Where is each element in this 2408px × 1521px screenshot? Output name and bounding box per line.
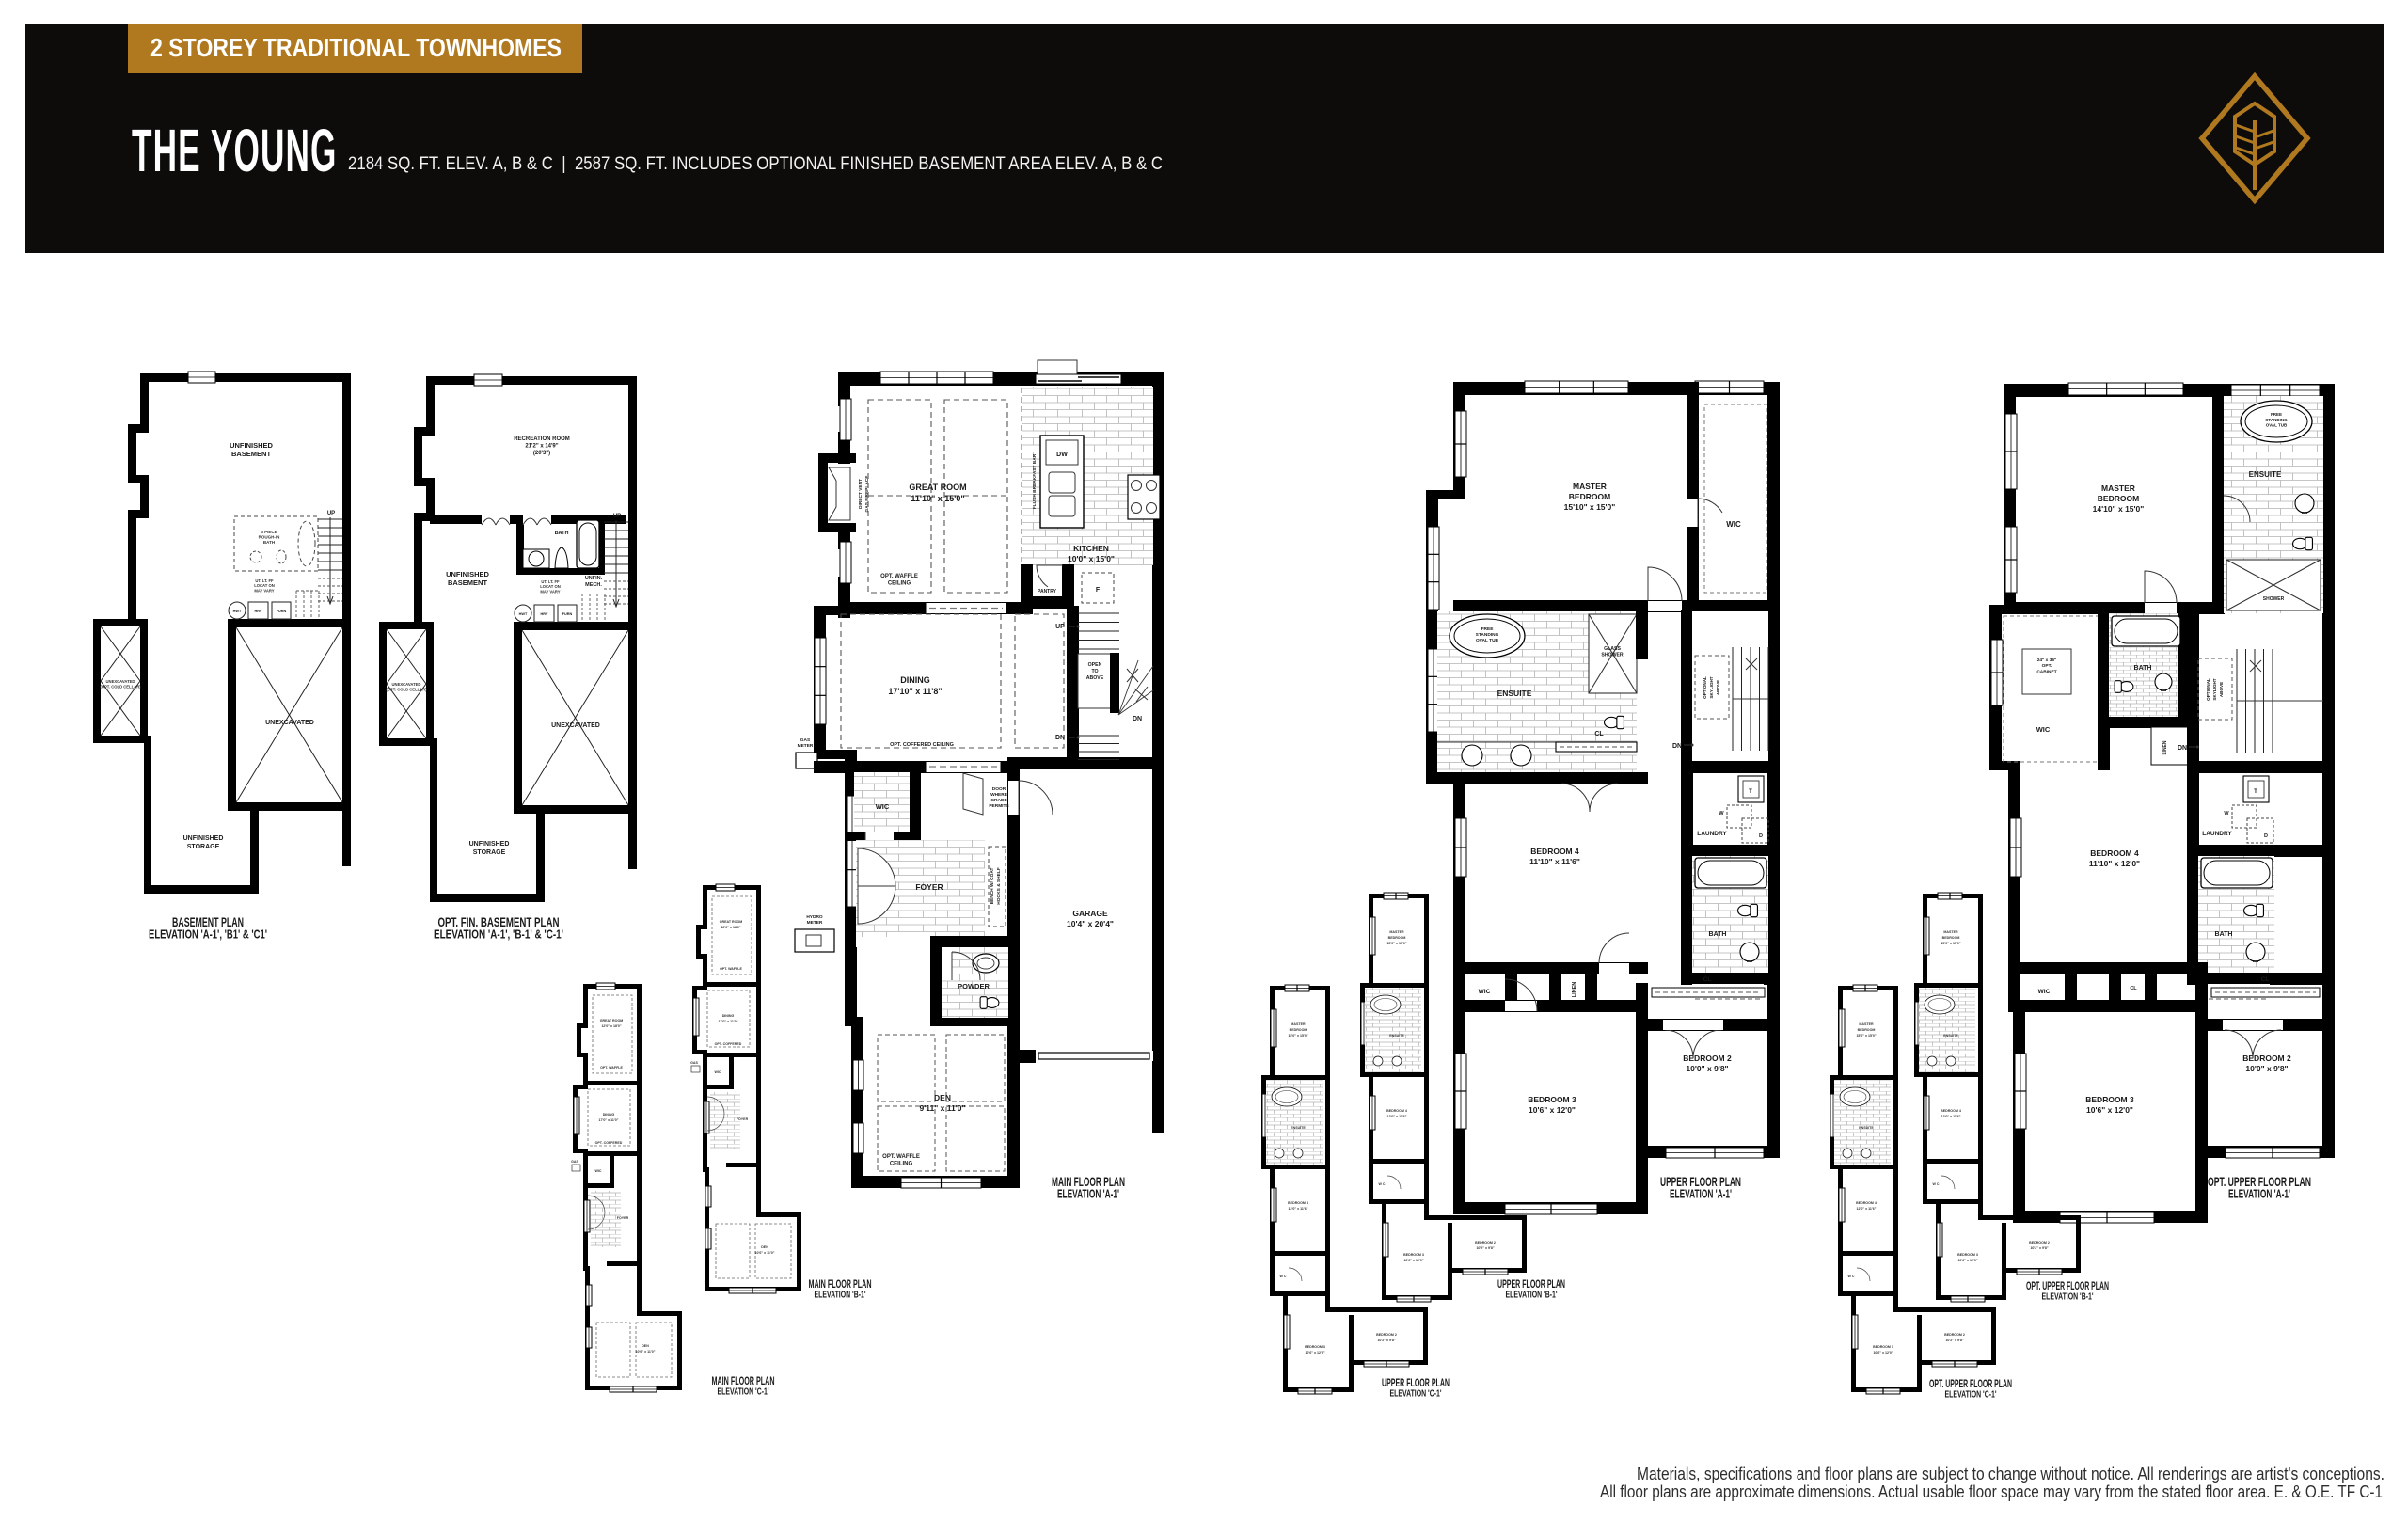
svg-text:SKYLIGHT: SKYLIGHT	[1709, 676, 1714, 698]
svg-text:BEDROOM 4: BEDROOM 4	[1856, 1201, 1877, 1205]
svg-text:UP: UP	[613, 514, 621, 519]
svg-text:ELEVATION 'C-1': ELEVATION 'C-1'	[718, 1386, 769, 1398]
svg-text:BEDROOM 3: BEDROOM 3	[1873, 1345, 1893, 1349]
svg-text:UNFINISHED: UNFINISHED	[183, 835, 224, 842]
svg-text:METER: METER	[798, 743, 814, 749]
svg-text:2184 SQ. FT. ELEV. A, B & C |: 2184 SQ. FT. ELEV. A, B & C | 2587 SQ. F…	[348, 153, 1163, 174]
svg-text:BEDROOM: BEDROOM	[2098, 494, 2139, 503]
svg-text:T: T	[2254, 789, 2257, 795]
svg-text:MAY VARY: MAY VARY	[540, 589, 560, 594]
svg-text:OPTIONAL: OPTIONAL	[1703, 676, 1707, 699]
svg-text:UP: UP	[327, 511, 335, 516]
svg-text:CL: CL	[1594, 731, 1604, 737]
svg-text:BATH: BATH	[1709, 931, 1727, 938]
svg-text:BASEMENT: BASEMENT	[231, 450, 272, 458]
svg-text:GAS: GAS	[571, 1160, 578, 1164]
svg-text:OVAL TUB: OVAL TUB	[2266, 423, 2288, 428]
svg-text:WIC: WIC	[876, 802, 890, 811]
svg-text:BEDROOM 4: BEDROOM 4	[1941, 1109, 1961, 1113]
svg-text:TO: TO	[1091, 669, 1098, 674]
svg-text:MASTER: MASTER	[1859, 1022, 1874, 1026]
svg-text:10'2" x 9'8": 10'2" x 9'8"	[1945, 1339, 1963, 1342]
svg-text:WHERE: WHERE	[990, 792, 1008, 798]
svg-text:ELEVATION 'B-1': ELEVATION 'B-1'	[815, 1290, 866, 1301]
svg-text:OPT. COFFERED CEILING: OPT. COFFERED CEILING	[890, 742, 954, 748]
svg-text:UNEXCAVATED: UNEXCAVATED	[392, 682, 421, 687]
svg-text:LAUNDRY: LAUNDRY	[2202, 831, 2232, 837]
svg-text:9'11" x 11'0": 9'11" x 11'0"	[920, 1103, 966, 1113]
svg-text:ABOVE: ABOVE	[1716, 680, 1720, 695]
svg-text:WIC: WIC	[2036, 725, 2051, 734]
svg-text:BATH: BATH	[263, 540, 275, 545]
svg-text:DINING: DINING	[722, 1014, 735, 1018]
svg-text:DW: DW	[1056, 452, 1068, 458]
svg-text:ELEVATION 'A-1': ELEVATION 'A-1'	[1057, 1188, 1119, 1201]
svg-text:STANDING: STANDING	[2265, 418, 2288, 422]
svg-text:RECREATION ROOM: RECREATION ROOM	[514, 436, 570, 442]
svg-text:OVAL TUB: OVAL TUB	[1476, 638, 1499, 643]
svg-text:BEDROOM 2: BEDROOM 2	[1944, 1333, 1965, 1337]
svg-text:OPT.: OPT.	[2042, 663, 2052, 669]
svg-text:LINEN: LINEN	[1572, 982, 1577, 998]
svg-text:WIC: WIC	[595, 1169, 602, 1173]
svg-text:BEDROOM 3: BEDROOM 3	[1957, 1253, 1978, 1257]
svg-text:HYDRO: HYDRO	[806, 914, 823, 920]
svg-text:W C: W C	[1933, 1182, 1940, 1186]
svg-text:ELEVATION 'A-1': ELEVATION 'A-1'	[1670, 1188, 1732, 1201]
svg-text:ELEVATION 'A-1': ELEVATION 'A-1'	[2228, 1188, 2290, 1201]
svg-text:UNEXCAVATED: UNEXCAVATED	[106, 679, 135, 684]
svg-text:12'0" x 18'0": 12'0" x 18'0"	[601, 1024, 621, 1028]
svg-text:DEN: DEN	[642, 1344, 649, 1348]
svg-text:12'0" x 11'6": 12'0" x 11'6"	[1387, 1115, 1407, 1118]
svg-text:Materials, specifications and: Materials, specifications and floor plan…	[1637, 1465, 2384, 1483]
svg-text:CEILING: CEILING	[888, 581, 911, 587]
svg-text:ELEVATION 'B-1': ELEVATION 'B-1'	[1506, 1290, 1558, 1301]
svg-text:DINING: DINING	[603, 1113, 615, 1117]
svg-text:HWT: HWT	[233, 610, 242, 613]
svg-text:D: D	[2264, 833, 2268, 839]
svg-text:SHOWER: SHOWER	[1601, 653, 1624, 658]
svg-text:OPT. COFFERED: OPT. COFFERED	[595, 1141, 623, 1145]
svg-text:UNFINISHED: UNFINISHED	[230, 441, 273, 450]
svg-text:BEDROOM 3: BEDROOM 3	[1528, 1095, 1576, 1104]
svg-text:HWT: HWT	[519, 612, 528, 616]
svg-text:GLASS: GLASS	[1604, 646, 1621, 652]
svg-text:3 PIECE: 3 PIECE	[261, 530, 277, 534]
svg-text:15'0" x 15'0": 15'0" x 15'0"	[1288, 1034, 1307, 1038]
svg-text:BENCH W/ COAT: BENCH W/ COAT	[990, 868, 995, 905]
svg-text:10'2" x 9'8": 10'2" x 9'8"	[2030, 1246, 2048, 1250]
svg-text:BEDROOM: BEDROOM	[1858, 1028, 1876, 1032]
svg-text:BEDROOM 4: BEDROOM 4	[1530, 847, 1579, 856]
svg-text:14'10" x 15'0": 14'10" x 15'0"	[2093, 504, 2145, 514]
svg-text:MASTER: MASTER	[1943, 930, 1958, 934]
svg-text:ENSUITE: ENSUITE	[1389, 1034, 1404, 1038]
svg-text:17'0" x 11'0": 17'0" x 11'0"	[719, 1020, 738, 1023]
svg-text:17'10" x 11'8": 17'10" x 11'8"	[888, 687, 942, 696]
svg-text:15'0" x 15'0": 15'0" x 15'0"	[1941, 942, 1960, 945]
svg-text:OPT. WAFFLE: OPT. WAFFLE	[880, 574, 918, 579]
svg-text:BASEMENT: BASEMENT	[448, 578, 488, 587]
svg-text:CABINET: CABINET	[2036, 669, 2056, 674]
svg-text:21'2" x 14'9": 21'2" x 14'9"	[525, 444, 558, 450]
svg-text:(20'3"): (20'3")	[533, 451, 550, 456]
svg-text:BEDROOM: BEDROOM	[1388, 936, 1406, 940]
svg-text:GAS: GAS	[800, 737, 811, 743]
svg-text:BEDROOM: BEDROOM	[1290, 1028, 1307, 1032]
svg-text:FLUSH BREAKFAST BAR: FLUSH BREAKFAST BAR	[1032, 453, 1038, 509]
svg-text:DN: DN	[1055, 735, 1065, 741]
svg-text:12'0" x 11'6": 12'0" x 11'6"	[1289, 1207, 1308, 1211]
svg-text:ELEVATION 'C-1': ELEVATION 'C-1'	[1390, 1388, 1442, 1400]
svg-text:MASTER: MASTER	[1573, 482, 1607, 491]
svg-text:W: W	[2224, 811, 2229, 816]
svg-text:BEDROOM 2: BEDROOM 2	[1683, 1054, 1732, 1063]
svg-text:DOOR: DOOR	[992, 786, 1006, 792]
svg-text:FURN: FURN	[562, 612, 573, 616]
svg-text:10'4" x 20'4": 10'4" x 20'4"	[1067, 919, 1114, 928]
svg-text:BEDROOM: BEDROOM	[1942, 936, 1960, 940]
svg-text:(OPT. COLD CELLAR): (OPT. COLD CELLAR)	[100, 685, 141, 689]
svg-text:FURN: FURN	[277, 610, 287, 613]
svg-text:12'0" x 18'0": 12'0" x 18'0"	[721, 926, 740, 929]
svg-text:GAS: GAS	[690, 1061, 698, 1065]
svg-text:WIC: WIC	[1479, 989, 1491, 995]
svg-text:BATH: BATH	[2134, 665, 2152, 672]
svg-text:DN: DN	[2178, 745, 2187, 752]
svg-text:WIC: WIC	[2038, 989, 2051, 995]
svg-text:T: T	[1749, 789, 1752, 795]
svg-text:11'10" x 11'6": 11'10" x 11'6"	[1529, 857, 1580, 866]
svg-text:ENSUITE: ENSUITE	[2249, 470, 2282, 479]
svg-text:MECH.: MECH.	[585, 582, 602, 588]
svg-text:ROUGH-IN: ROUGH-IN	[259, 535, 280, 540]
svg-text:CL: CL	[2130, 986, 2137, 991]
svg-text:WIC: WIC	[1726, 520, 1741, 529]
svg-text:12'0" x 11'6": 12'0" x 11'6"	[1857, 1207, 1877, 1211]
svg-text:DN: DN	[1133, 716, 1142, 722]
svg-text:24" x 36": 24" x 36"	[2037, 658, 2057, 663]
svg-text:17'0" x 11'0": 17'0" x 11'0"	[599, 1118, 619, 1122]
svg-text:10'6" x 12'0": 10'6" x 12'0"	[1305, 1351, 1324, 1355]
svg-text:GREAT ROOM: GREAT ROOM	[720, 920, 743, 924]
svg-text:DEN: DEN	[761, 1245, 768, 1249]
svg-text:W C: W C	[1379, 1182, 1386, 1186]
svg-text:PERMITS: PERMITS	[989, 803, 1009, 809]
svg-text:DEN: DEN	[934, 1093, 951, 1102]
svg-text:UNFINISHED: UNFINISHED	[446, 570, 489, 578]
svg-text:11'10" x 12'0": 11'10" x 12'0"	[2089, 859, 2140, 868]
svg-text:METER: METER	[807, 920, 823, 926]
svg-text:HOOKS & SHELF: HOOKS & SHELF	[996, 867, 1002, 905]
svg-text:FREE: FREE	[2271, 412, 2282, 417]
svg-text:W C: W C	[1848, 1275, 1855, 1278]
svg-text:10'6" x 12'0": 10'6" x 12'0"	[1957, 1259, 1977, 1262]
svg-text:BEDROOM: BEDROOM	[1569, 492, 1610, 501]
svg-text:UNFIN.: UNFIN.	[585, 576, 603, 581]
svg-text:UNEXCAVATED: UNEXCAVATED	[265, 720, 314, 726]
svg-text:THE YOUNG: THE YOUNG	[132, 117, 337, 184]
svg-text:BEDROOM 3: BEDROOM 3	[2085, 1095, 2134, 1104]
svg-text:BEDROOM 3: BEDROOM 3	[1305, 1345, 1325, 1349]
svg-text:GRADE: GRADE	[990, 798, 1007, 803]
svg-text:CEILING: CEILING	[890, 1162, 913, 1167]
svg-text:BEDROOM 2: BEDROOM 2	[1475, 1241, 1496, 1244]
svg-text:10'0" x 15'0": 10'0" x 15'0"	[1068, 554, 1115, 563]
svg-text:MASTER: MASTER	[1389, 930, 1404, 934]
svg-text:2 STOREY TRADITIONAL TOWNHOMES: 2 STOREY TRADITIONAL TOWNHOMES	[150, 33, 562, 62]
svg-text:10'2" x 9'8": 10'2" x 9'8"	[1377, 1339, 1395, 1342]
svg-text:DINING: DINING	[900, 675, 930, 685]
svg-text:15'10" x 15'0": 15'10" x 15'0"	[1564, 502, 1616, 512]
svg-text:15'0" x 15'0": 15'0" x 15'0"	[1856, 1034, 1876, 1038]
svg-text:OPT. WAFFLE: OPT. WAFFLE	[600, 1066, 623, 1069]
svg-text:OPT. WAFFLE: OPT. WAFFLE	[882, 1154, 920, 1160]
svg-text:10'6" x 12'0": 10'6" x 12'0"	[2086, 1105, 2133, 1115]
svg-text:FOYER: FOYER	[915, 882, 943, 892]
svg-text:BEDROOM 2: BEDROOM 2	[1376, 1333, 1397, 1337]
svg-text:ENSUITE: ENSUITE	[1497, 689, 1532, 698]
svg-text:BEDROOM 3: BEDROOM 3	[1403, 1253, 1424, 1257]
svg-text:DN: DN	[1672, 743, 1682, 750]
svg-text:BATH: BATH	[2215, 931, 2233, 938]
svg-text:UNEXCAVATED: UNEXCAVATED	[551, 722, 600, 729]
svg-text:10'6" x 12'0": 10'6" x 12'0"	[1403, 1259, 1423, 1262]
svg-text:FOYER: FOYER	[617, 1216, 629, 1220]
svg-text:(OPT. COLD CELLAR): (OPT. COLD CELLAR)	[386, 688, 427, 692]
svg-text:LAUNDRY: LAUNDRY	[1697, 831, 1727, 837]
svg-text:OPTIONAL: OPTIONAL	[2206, 678, 2210, 701]
svg-text:BEDROOM 4: BEDROOM 4	[1288, 1201, 1308, 1205]
svg-text:10'0" x 9'8": 10'0" x 9'8"	[1686, 1064, 1728, 1073]
svg-text:15'0" x 15'0": 15'0" x 15'0"	[1386, 942, 1406, 945]
svg-text:OPEN: OPEN	[1088, 662, 1102, 668]
svg-text:DIRECT VENT: DIRECT VENT	[858, 479, 863, 509]
svg-text:LINEN: LINEN	[2162, 740, 2168, 754]
svg-text:OPT. COFFERED: OPT. COFFERED	[715, 1042, 742, 1046]
svg-text:PANTRY: PANTRY	[1038, 589, 1057, 594]
svg-text:ELEVATION 'A-1', 'B1' & 'C1': ELEVATION 'A-1', 'B1' & 'C1'	[149, 928, 267, 942]
svg-text:MASTER: MASTER	[1291, 1022, 1306, 1026]
svg-text:W C: W C	[1280, 1275, 1287, 1278]
svg-text:10'6" x 12'0": 10'6" x 12'0"	[1529, 1105, 1576, 1115]
svg-text:SHOWER: SHOWER	[2263, 596, 2285, 602]
svg-text:CL: CL	[1703, 976, 1712, 983]
svg-text:UNFINISHED: UNFINISHED	[469, 841, 510, 848]
svg-text:10'6" x 11'0": 10'6" x 11'0"	[755, 1251, 775, 1255]
svg-text:BEDROOM 2: BEDROOM 2	[2029, 1241, 2050, 1244]
svg-text:ELEVATION 'C-1': ELEVATION 'C-1'	[1945, 1389, 1997, 1401]
svg-text:F: F	[1096, 587, 1101, 594]
svg-text:STANDING: STANDING	[1476, 632, 1499, 638]
svg-text:HRV: HRV	[255, 610, 262, 613]
svg-text:GREAT ROOM: GREAT ROOM	[909, 483, 966, 492]
svg-text:MAY VARY: MAY VARY	[254, 588, 274, 593]
svg-text:10'6" x 12'0": 10'6" x 12'0"	[1873, 1351, 1893, 1355]
svg-text:ENSUITE: ENSUITE	[1943, 1034, 1958, 1038]
svg-text:STORAGE: STORAGE	[473, 849, 506, 856]
svg-text:BEDROOM 2: BEDROOM 2	[2242, 1054, 2291, 1063]
svg-text:OPT. WAFFLE: OPT. WAFFLE	[720, 967, 742, 971]
svg-text:10'0" x 9'8": 10'0" x 9'8"	[2245, 1064, 2288, 1073]
svg-text:10'2" x 9'8": 10'2" x 9'8"	[1476, 1246, 1494, 1250]
svg-text:WIC: WIC	[715, 1070, 721, 1074]
svg-text:ELEVATION 'A-1', 'B-1' & 'C-1': ELEVATION 'A-1', 'B-1' & 'C-1'	[434, 928, 563, 942]
svg-text:BATH: BATH	[555, 531, 569, 536]
svg-text:GAS FIREPLACE: GAS FIREPLACE	[864, 475, 870, 513]
svg-text:BEDROOM 4: BEDROOM 4	[1386, 1109, 1407, 1113]
svg-text:D: D	[1759, 833, 1763, 839]
svg-text:ELEVATION 'B-1': ELEVATION 'B-1'	[2042, 1291, 2094, 1303]
svg-text:POWDER: POWDER	[958, 982, 990, 990]
svg-text:ENSUITE: ENSUITE	[1859, 1126, 1874, 1130]
svg-text:12'0" x 11'6": 12'0" x 11'6"	[1941, 1115, 1961, 1118]
svg-text:W: W	[1719, 811, 1724, 816]
svg-text:HRV: HRV	[541, 612, 548, 616]
svg-text:GREAT ROOM: GREAT ROOM	[600, 1019, 624, 1022]
svg-text:GARAGE: GARAGE	[1072, 909, 1108, 918]
svg-text:MASTER: MASTER	[2101, 483, 2135, 493]
svg-text:KITCHEN: KITCHEN	[1073, 544, 1109, 553]
svg-text:ABOVE: ABOVE	[1086, 675, 1104, 681]
svg-text:10'6" x 11'0": 10'6" x 11'0"	[636, 1350, 656, 1354]
svg-text:STORAGE: STORAGE	[187, 844, 220, 850]
svg-text:ENSUITE: ENSUITE	[1291, 1126, 1306, 1130]
svg-text:FREE: FREE	[1481, 626, 1495, 632]
svg-text:CL: CL	[2261, 976, 2270, 983]
svg-text:11'10" x 15'0": 11'10" x 15'0"	[911, 494, 964, 503]
svg-text:ABOVE: ABOVE	[2219, 682, 2224, 697]
svg-text:UP: UP	[1055, 624, 1065, 630]
svg-text:FOYER: FOYER	[737, 1117, 749, 1121]
svg-text:All floor plans are approximat: All floor plans are approximate dimensio…	[1600, 1482, 2383, 1501]
svg-text:SKYLIGHT: SKYLIGHT	[2212, 678, 2217, 700]
svg-text:BEDROOM 4: BEDROOM 4	[2090, 848, 2139, 858]
